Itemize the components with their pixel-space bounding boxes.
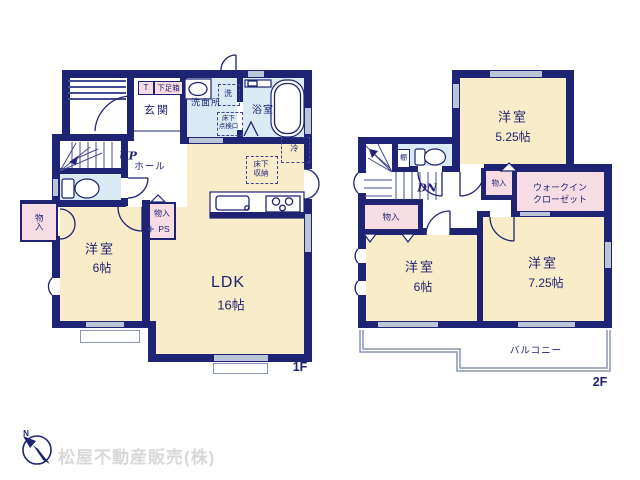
ldk-size: 16帖 (217, 299, 244, 312)
west6-2f-window-gap (358, 281, 366, 295)
closet-1f-left-label: 物入 (35, 214, 44, 231)
wall (62, 70, 312, 78)
compass-needle-body (33, 445, 50, 464)
balcony-label: バルコニー (510, 346, 562, 356)
closet-2f-left-label: 物入 (382, 213, 399, 222)
toilet-1f-door-arc (128, 178, 148, 198)
west6-1f-size: 6帖 (93, 262, 112, 274)
bathroom-label: 浴室 (252, 106, 274, 116)
washer-label: 洗 (224, 90, 232, 98)
ldk-opening-mark (151, 195, 165, 202)
wall (452, 164, 460, 172)
west525-top-window (490, 71, 542, 77)
west6-2f-size: 6帖 (414, 281, 433, 293)
compass-n-label: N (23, 430, 29, 438)
west6-1f-label: 洋室 (85, 243, 115, 256)
wall (358, 137, 458, 144)
closet-2f-mid-label: 物入 (492, 179, 507, 187)
fridge-label: 冷 (291, 145, 299, 153)
toilet-1f-floor (58, 174, 121, 200)
closet-ps-box (148, 202, 176, 240)
floor2-label: 2F (593, 376, 608, 389)
west525-side-window (453, 84, 459, 108)
ldk-backdoor-gap (304, 169, 312, 199)
porch-step-line (68, 92, 126, 94)
ldk-window (214, 355, 268, 361)
west6-1f-window-gap (52, 278, 60, 295)
balcony-outline-outer (360, 330, 610, 371)
genkan-label: 玄関 (144, 106, 170, 117)
stairs-1f-arrowhead (69, 156, 78, 165)
hatch-label-line2: 点検口 (219, 124, 239, 131)
west525-size: 5.25帖 (495, 131, 530, 143)
terrace-ldk (213, 363, 268, 374)
west6-2f-window-gap (358, 249, 366, 263)
west725-label: 洋室 (528, 257, 558, 270)
stairs-1f-fan (60, 143, 102, 171)
washroom-backdoor-arc (221, 55, 236, 70)
west6-2f-floor (366, 235, 477, 321)
compass-circle (23, 436, 51, 464)
wall (442, 166, 452, 172)
balcony-outline-inner (363, 330, 607, 368)
stairs-1f-treads (72, 142, 112, 168)
washroom-label: 洗面所 (191, 99, 221, 108)
stairs-2f-fan (366, 144, 392, 172)
west525-label: 洋室 (498, 111, 528, 124)
west6-1f-window (86, 322, 124, 327)
stairwell-window-gap (358, 173, 366, 193)
wall (127, 70, 134, 134)
shoebox-label: 下足箱 (157, 84, 180, 92)
hall-label: ホール (134, 162, 166, 172)
ldk-side-window (305, 214, 311, 252)
bath-window (248, 71, 264, 77)
ps-label: PS (158, 225, 169, 234)
west6-2f-balcony-window (378, 322, 438, 327)
wic-label-line1: ウォークイン (533, 184, 587, 193)
washroom-sliding-door (189, 138, 223, 143)
porch-step-line (68, 80, 126, 82)
wic-window (520, 212, 550, 216)
genkan-step-edge (134, 130, 180, 132)
wall (566, 70, 574, 172)
stairs-2f-treads (364, 180, 392, 196)
stairs-2f-arrowhead (369, 149, 378, 158)
t-box-label: T (144, 84, 149, 92)
west6-2f-door-arc (426, 211, 450, 235)
stairs-up-label: UP (119, 151, 137, 162)
west725-balcony-window (518, 322, 575, 327)
floor-storage-label-line1: 床下 (254, 160, 269, 168)
stairs-1f-arrow-line (73, 149, 98, 160)
bath-side-window (305, 108, 311, 134)
porch-step-line (68, 86, 126, 88)
stairs-2f-arrow-line (372, 152, 390, 168)
floorplan-image: 玄関 T 下足箱 洗面所 洗 床下 点検口 浴室 冷 床下 収納 UP ホール … (0, 0, 640, 480)
wall (58, 168, 121, 174)
company-name: 松屋不動産販売(株) (58, 443, 215, 468)
shelf-label: 棚 (400, 155, 407, 162)
terrace-west6 (80, 330, 140, 343)
west725-side-window (605, 242, 611, 268)
wic-label-line2: クローゼット (533, 196, 587, 205)
wall (477, 211, 490, 217)
floor-storage-label-line2: 収納 (254, 169, 269, 177)
wall (477, 211, 483, 328)
porch-step-line (68, 98, 126, 100)
ldk-label: LDK (211, 275, 245, 291)
west725-size: 7.25帖 (528, 277, 563, 289)
west6-2f-label: 洋室 (405, 261, 435, 274)
floor1-label: 1F (293, 361, 308, 374)
toilet-1f-window (53, 179, 58, 196)
entrance-door-arc (95, 96, 130, 133)
closet-ps-label: 物入 (154, 210, 170, 218)
stairs-down-label: DN (417, 183, 437, 194)
hatch-label-line1: 床下 (222, 116, 235, 123)
